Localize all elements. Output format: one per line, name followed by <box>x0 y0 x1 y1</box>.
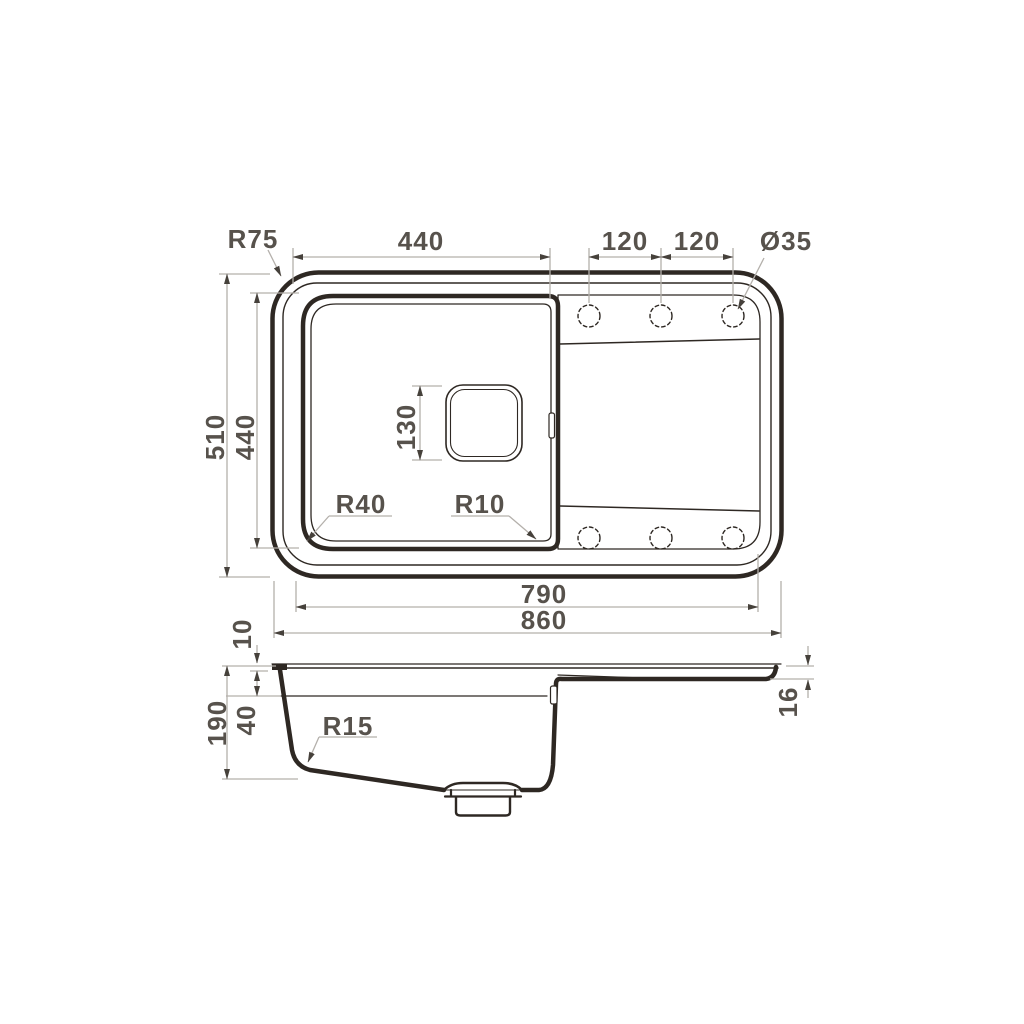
dim-label-overall-height: 190 <box>202 700 232 746</box>
overflow-notch-side <box>551 686 558 704</box>
dim-label-bowl-outer-depth: 440 <box>230 414 260 460</box>
dim-label-hole-spacing-right: 120 <box>674 226 720 256</box>
dim-label-bowl-corner-radius-right: R10 <box>455 489 506 519</box>
dim-label-bowl-bottom-radius: R15 <box>323 711 374 741</box>
dim-label-hole-diameter: Ø35 <box>760 226 812 256</box>
dim-label-rim-height: 10 <box>227 619 257 650</box>
dim-label-drain-size: 130 <box>391 404 421 450</box>
dim-label-corner-radius: R75 <box>228 224 279 254</box>
dim-label-hole-spacing-left: 120 <box>602 226 648 256</box>
overflow-notch-top <box>549 413 555 438</box>
dim-label-bowl-outer-width: 440 <box>398 226 444 256</box>
dim-label-ledge-depth: 40 <box>231 705 261 736</box>
dim-label-overall-width: 860 <box>521 605 567 635</box>
background <box>0 0 1024 1024</box>
dim-label-overall-depth: 510 <box>200 414 230 460</box>
page: R75440120120Ø35510440130R40R107908601019… <box>0 0 1024 1024</box>
dim-label-drainboard-thickness: 16 <box>773 687 803 718</box>
sink-technical-drawing: R75440120120Ø35510440130R40R107908601019… <box>0 0 1024 1024</box>
dim-label-bowl-corner-radius-left: R40 <box>336 489 387 519</box>
